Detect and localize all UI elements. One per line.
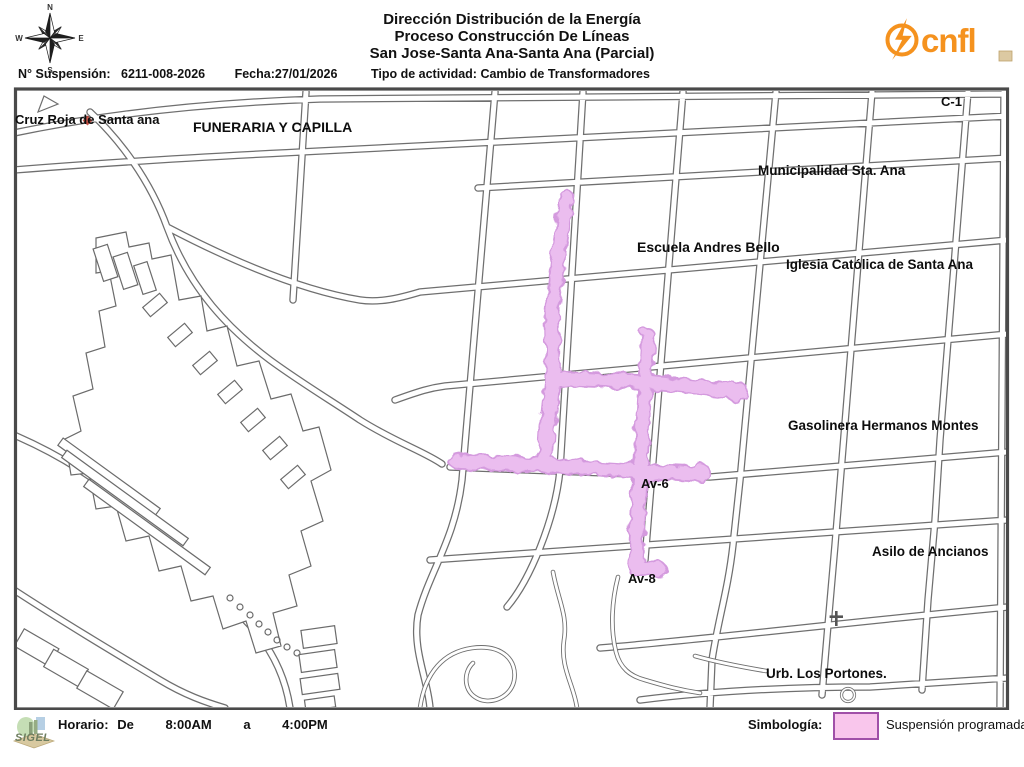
title-line-1: Dirección Distribución de la Energía <box>200 11 824 28</box>
horario-a: a <box>243 717 250 732</box>
legend-text: Suspensión programada <box>886 717 1024 732</box>
horario-de: De <box>117 717 134 732</box>
compass-w: W <box>15 34 23 43</box>
fecha-value: Fecha:27/01/2026 <box>235 67 338 81</box>
map-label-iglesia: Iglesia Católica de Santa Ana <box>786 257 973 272</box>
compass-rose: N S W E <box>13 1 87 75</box>
info-bar: N° Suspensión: 6211-008-2026 Fecha:27/01… <box>18 67 650 81</box>
tipo-actividad: Tipo de actividad: Cambio de Transformad… <box>371 67 650 81</box>
title-line-2: Proceso Construcción De Líneas <box>200 28 824 45</box>
cnfl-logo-text: cnfl <box>921 22 976 59</box>
map-label-c1: C-1 <box>941 94 962 109</box>
cnfl-logo-mark <box>999 51 1012 61</box>
title-line-3: San Jose-Santa Ana-Santa Ana (Parcial) <box>200 45 824 62</box>
map-label-av8: Av-8 <box>628 571 656 586</box>
legend-swatch <box>833 712 879 740</box>
map-label-urb: Urb. Los Portones. <box>766 666 887 681</box>
suspension-value: 6211-008-2026 <box>121 67 205 81</box>
footer-bar: SIGEL Horario: De 8:00AM a 4:00PM Simbol… <box>0 710 1024 767</box>
compass-e: E <box>78 34 84 43</box>
sigel-logo-text: SIGEL <box>15 732 51 744</box>
map-label-municipalidad: Municipalidad Sta. Ana <box>758 163 905 178</box>
horario-label: Horario: <box>58 717 109 732</box>
horario-row: Horario: De 8:00AM a 4:00PM <box>58 717 328 732</box>
header-titles: Dirección Distribución de la Energía Pro… <box>200 11 824 62</box>
suspension-label: N° Suspensión: <box>18 67 111 81</box>
horario-end: 4:00PM <box>282 717 328 732</box>
compass-n: N <box>47 3 53 12</box>
map-label-gasolinera: Gasolinera Hermanos Montes <box>788 418 979 433</box>
map-label-cruz-roja: Cruz Roja de Santa ana <box>15 112 159 127</box>
simbologia-label: Simbología: <box>748 717 822 732</box>
sigel-logo: SIGEL <box>12 713 56 753</box>
map-label-escuela: Escuela Andres Bello <box>637 239 780 255</box>
map-label-av6: Av-6 <box>641 476 669 491</box>
horario-start: 8:00AM <box>165 717 211 732</box>
map-label-funeraria: FUNERARIA Y CAPILLA <box>193 119 352 135</box>
map-label-asilo: Asilo de Ancianos <box>872 544 989 559</box>
suspension-map-page: N S W E Dirección Distribución de la Ene… <box>0 0 1024 767</box>
cnfl-logo: cnfl <box>878 12 1018 66</box>
